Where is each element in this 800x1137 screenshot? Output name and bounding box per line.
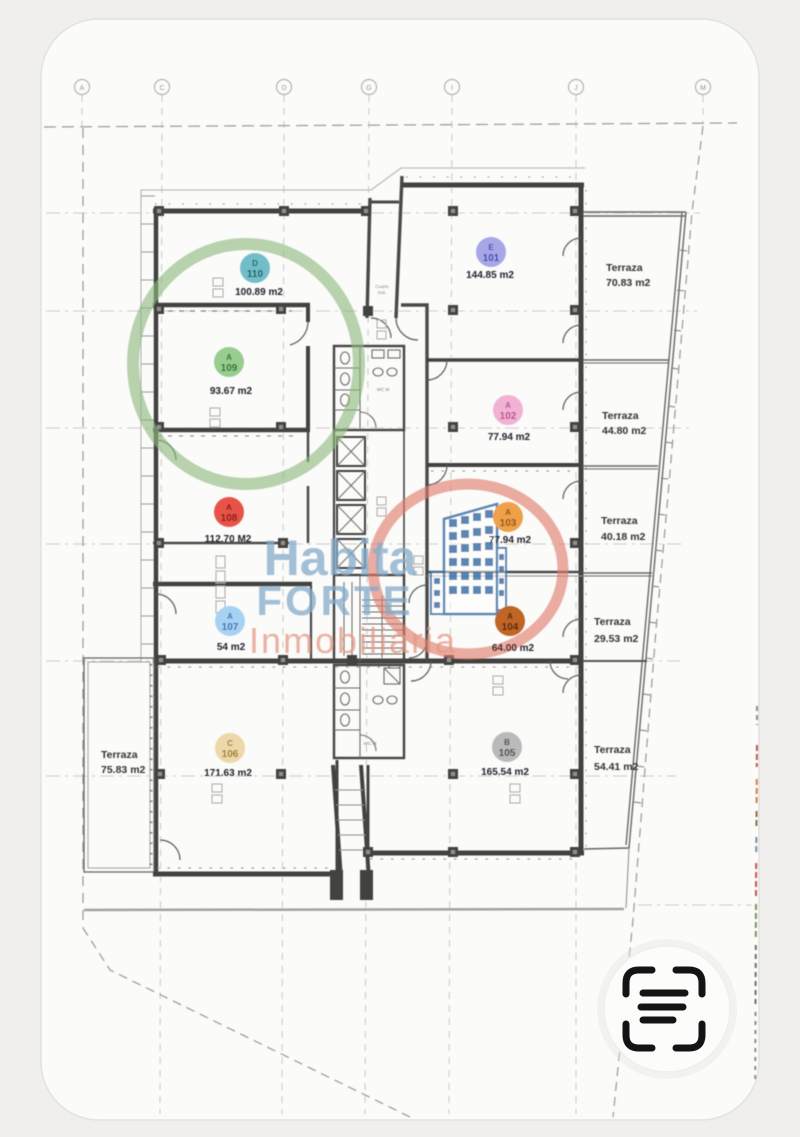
svg-text:Terraza: Terraza — [594, 616, 631, 628]
svg-text:WC M: WC M — [364, 741, 377, 746]
svg-text:J: J — [574, 85, 578, 92]
svg-text:77.94 m2: 77.94 m2 — [489, 535, 532, 546]
svg-text:Terraza: Terraza — [101, 749, 138, 761]
svg-text:C: C — [227, 739, 233, 748]
svg-text:D: D — [252, 259, 258, 268]
svg-text:54 m2: 54 m2 — [217, 642, 246, 653]
svg-text:105: 105 — [499, 748, 516, 759]
svg-text:B: B — [504, 738, 510, 747]
svg-text:A: A — [505, 508, 511, 517]
svg-text:165.54 m2: 165.54 m2 — [481, 767, 529, 778]
svg-text:112.70 M2: 112.70 M2 — [205, 534, 252, 545]
svg-text:I: I — [451, 85, 453, 92]
svg-text:Cuarto: Cuarto — [375, 284, 389, 289]
svg-text:101: 101 — [483, 253, 500, 264]
svg-text:Inst.: Inst. — [378, 290, 387, 295]
svg-text:G: G — [366, 85, 371, 92]
svg-text:64.00 m2: 64.00 m2 — [492, 643, 535, 654]
svg-text:107: 107 — [222, 622, 239, 633]
svg-text:Terraza: Terraza — [606, 262, 643, 274]
svg-text:A: A — [226, 503, 232, 512]
svg-text:Inmobiliaria: Inmobiliaria — [249, 620, 457, 661]
svg-text:54.41 m2: 54.41 m2 — [594, 761, 639, 773]
svg-text:C: C — [159, 85, 164, 92]
svg-text:M: M — [700, 85, 706, 92]
svg-text:171.63 m2: 171.63 m2 — [204, 768, 252, 779]
svg-text:WC M: WC M — [377, 387, 390, 392]
svg-text:108: 108 — [221, 513, 238, 524]
svg-text:A: A — [505, 401, 511, 410]
svg-text:103: 103 — [500, 518, 517, 529]
svg-text:77.94 m2: 77.94 m2 — [488, 432, 531, 443]
svg-text:104: 104 — [502, 622, 519, 633]
svg-text:Terraza: Terraza — [594, 744, 631, 756]
svg-text:Terraza: Terraza — [601, 515, 638, 527]
svg-text:44.80 m2: 44.80 m2 — [602, 425, 647, 437]
svg-text:100.89 m2: 100.89 m2 — [235, 287, 283, 298]
svg-text:29.53 m2: 29.53 m2 — [594, 633, 639, 645]
svg-text:40.18 m2: 40.18 m2 — [601, 531, 646, 543]
svg-text:A: A — [80, 85, 85, 92]
svg-text:106: 106 — [222, 749, 239, 760]
svg-text:Terraza: Terraza — [602, 410, 639, 422]
svg-text:102: 102 — [500, 411, 517, 422]
svg-text:A: A — [227, 612, 233, 621]
svg-text:110: 110 — [247, 269, 264, 280]
svg-text:E: E — [488, 243, 494, 252]
svg-text:A: A — [507, 612, 513, 621]
svg-text:FORTE: FORTE — [256, 577, 413, 624]
svg-text:D: D — [281, 85, 286, 92]
svg-text:93.67 m2: 93.67 m2 — [210, 386, 253, 397]
svg-text:75.83 m2: 75.83 m2 — [101, 764, 146, 776]
svg-text:A: A — [226, 353, 232, 362]
svg-text:109: 109 — [221, 363, 238, 374]
svg-text:70.83 m2: 70.83 m2 — [606, 277, 651, 289]
svg-text:144.85 m2: 144.85 m2 — [466, 270, 514, 281]
